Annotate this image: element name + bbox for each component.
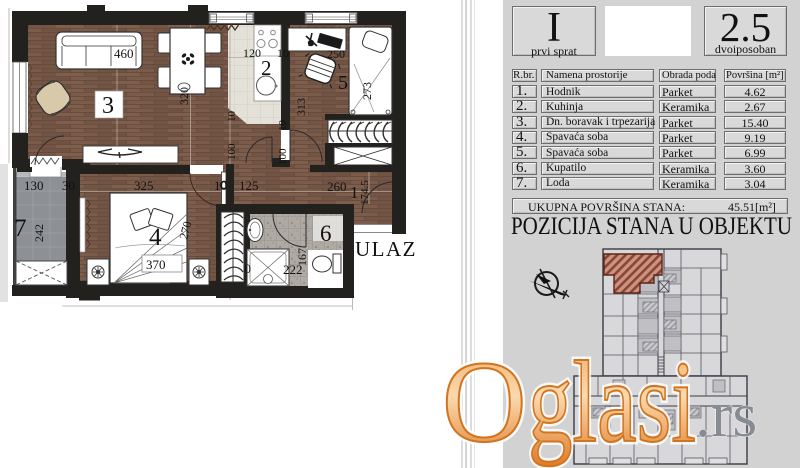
svg-text:0: 0 bbox=[245, 261, 252, 276]
svg-text:167: 167 bbox=[295, 248, 309, 266]
svg-text:5: 5 bbox=[338, 72, 348, 94]
svg-text:4: 4 bbox=[149, 224, 162, 251]
svg-text:7: 7 bbox=[14, 215, 27, 242]
svg-text:273: 273 bbox=[360, 82, 374, 100]
svg-text:ULAZ: ULAZ bbox=[355, 237, 417, 261]
svg-text:10: 10 bbox=[214, 178, 227, 193]
svg-text:250: 250 bbox=[327, 47, 345, 61]
svg-text:6: 6 bbox=[320, 221, 332, 246]
svg-text:320: 320 bbox=[177, 87, 191, 105]
svg-text:.rs: .rs bbox=[695, 379, 757, 450]
svg-text:370: 370 bbox=[146, 257, 166, 272]
svg-text:242: 242 bbox=[32, 224, 46, 242]
svg-text:10: 10 bbox=[226, 111, 238, 123]
svg-text:120: 120 bbox=[243, 46, 261, 60]
svg-text:100: 100 bbox=[277, 148, 289, 165]
svg-text:174.5: 174.5 bbox=[359, 180, 371, 205]
svg-text:460: 460 bbox=[114, 46, 134, 61]
svg-text:O: O bbox=[442, 338, 527, 467]
svg-text:10: 10 bbox=[277, 46, 289, 60]
svg-text:100: 100 bbox=[226, 143, 238, 160]
svg-text:1: 1 bbox=[350, 183, 359, 202]
svg-text:glasi: glasi bbox=[528, 337, 696, 466]
svg-text:325: 325 bbox=[134, 178, 154, 193]
svg-text:313: 313 bbox=[294, 98, 308, 116]
svg-text:2: 2 bbox=[261, 56, 272, 80]
svg-text:10: 10 bbox=[277, 120, 289, 132]
svg-text:260: 260 bbox=[327, 179, 347, 194]
svg-text:130: 130 bbox=[24, 178, 44, 193]
svg-text:30: 30 bbox=[62, 178, 75, 193]
svg-text:POZICIJA STANA U OBJEKTU: POZICIJA STANA U OBJEKTU bbox=[511, 213, 792, 240]
svg-text:3: 3 bbox=[102, 93, 114, 119]
svg-text:125: 125 bbox=[239, 178, 259, 193]
